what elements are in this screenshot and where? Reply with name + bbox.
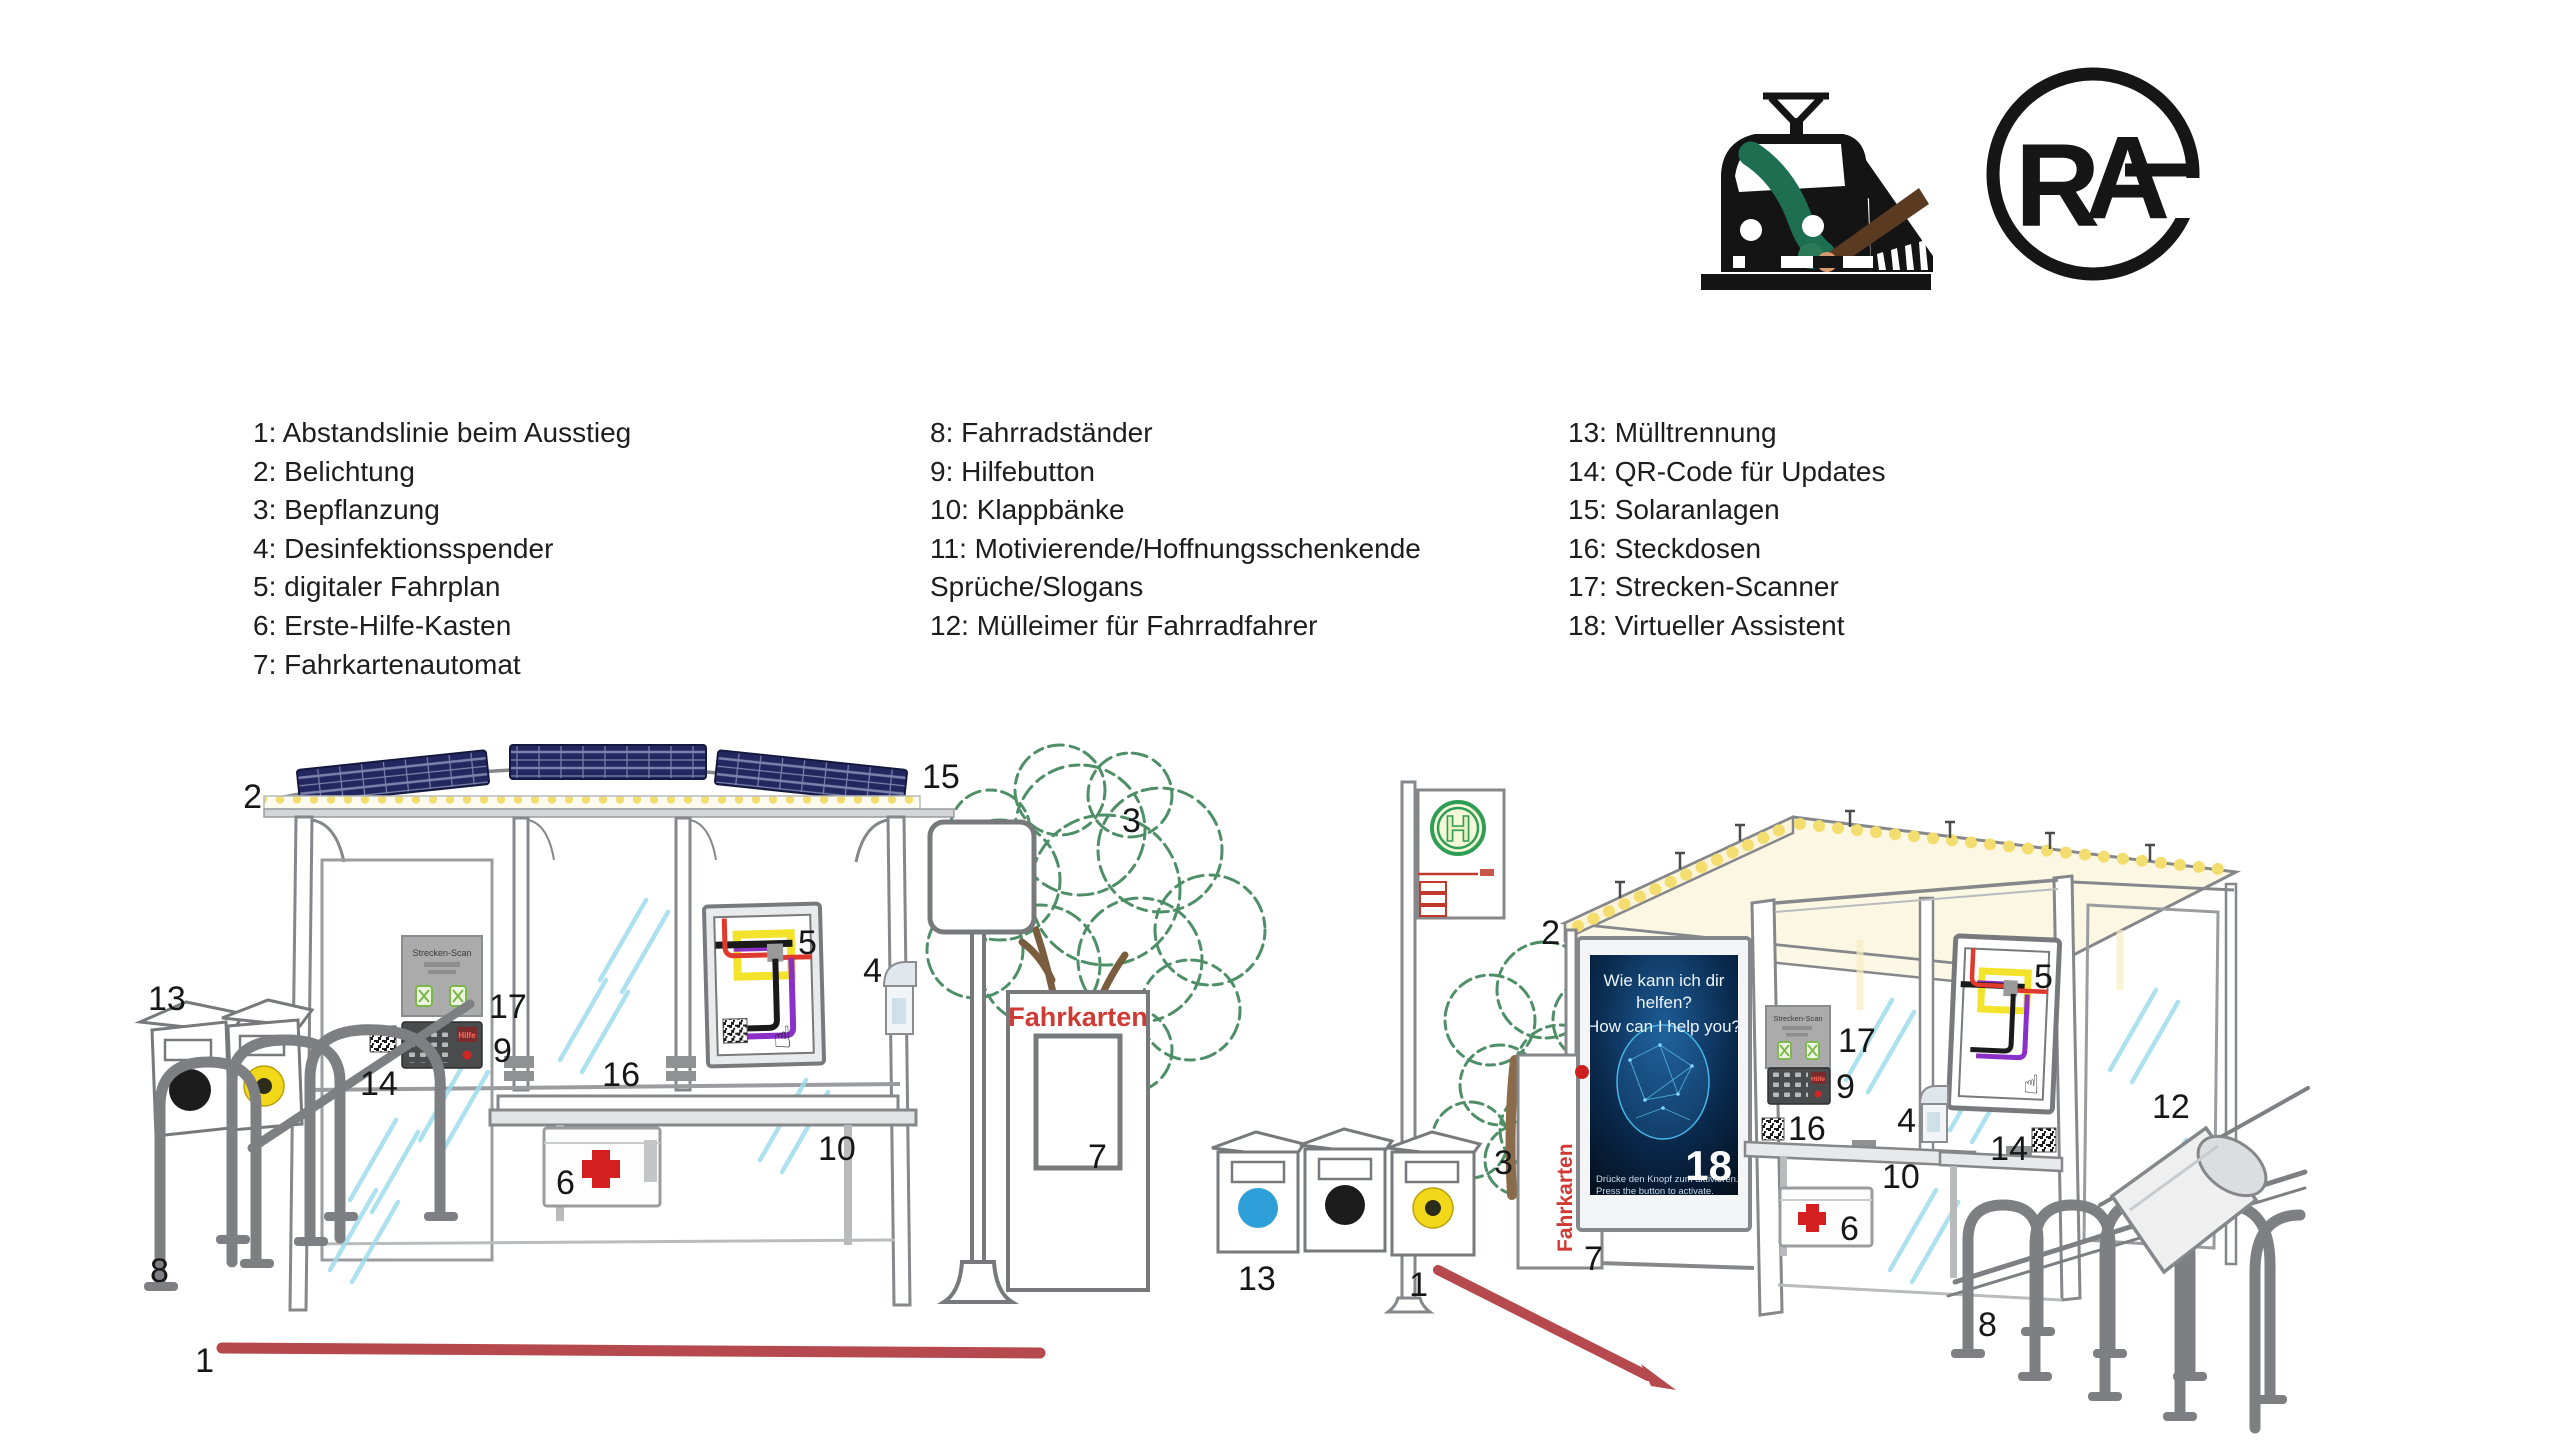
svg-text:13: 13	[148, 980, 186, 1018]
svg-text:14: 14	[1990, 1130, 2028, 1168]
scanner-title: Strecken-Scan	[1773, 1014, 1822, 1023]
qr-code-icon	[723, 1018, 748, 1043]
distance-line	[222, 1348, 1040, 1353]
svg-text:16: 16	[602, 1056, 640, 1094]
bus-stop-illustration: Fahrkarten	[0, 0, 2560, 1440]
svg-text:16: 16	[1788, 1110, 1826, 1148]
qr-code-icon	[1762, 1118, 1784, 1140]
fahrkarten-label: Fahrkarten	[1008, 1002, 1148, 1032]
svg-text:10: 10	[1882, 1158, 1920, 1196]
solar-panel-icon	[510, 745, 706, 779]
svg-text:1: 1	[1409, 1266, 1428, 1304]
svg-text:4: 4	[1897, 1102, 1916, 1140]
waste-bins[interactable]	[1212, 1129, 1480, 1255]
help-label: Hilfe	[458, 1031, 476, 1040]
assistant-line-3: How can I help you?	[1587, 1017, 1741, 1036]
svg-text:6: 6	[556, 1164, 575, 1202]
svg-text:13: 13	[1238, 1260, 1276, 1298]
assistant-number: 18	[1685, 1142, 1732, 1189]
svg-text:8: 8	[150, 1252, 169, 1290]
hand-tap-icon: ☝	[2023, 1070, 2040, 1101]
svg-text:15: 15	[922, 758, 960, 796]
svg-text:8: 8	[1978, 1306, 1997, 1344]
svg-text:17: 17	[1838, 1022, 1876, 1060]
svg-text:14: 14	[360, 1065, 398, 1103]
svg-text:9: 9	[1836, 1068, 1855, 1106]
waste-label-icon	[1325, 1185, 1365, 1225]
svg-text:5: 5	[798, 924, 817, 962]
hand-tap-icon: ☝	[773, 1020, 792, 1055]
right-shelter-scene: H	[1212, 782, 2308, 1428]
svg-text:2: 2	[243, 778, 262, 816]
route-scanner-panel[interactable]: Strecken-Scan	[1766, 1006, 1830, 1068]
assistant-line-1: Wie kann ich dir	[1604, 971, 1725, 990]
svg-text:6: 6	[1840, 1210, 1859, 1248]
help-button-icon[interactable]	[463, 1051, 472, 1060]
help-button-keypad[interactable]: Hilfe	[1768, 1068, 1830, 1104]
help-button-icon[interactable]	[1815, 1091, 1822, 1098]
svg-text:10: 10	[818, 1130, 856, 1168]
page: R A 1: Abstandslinie beim Ausstieg 2: Be…	[0, 0, 2560, 1440]
shelter-roof	[264, 745, 954, 817]
ticket-machine-screen[interactable]	[1036, 1036, 1120, 1168]
distance-line	[1438, 1270, 1676, 1390]
activate-button-icon[interactable]	[1575, 1065, 1589, 1079]
svg-text:7: 7	[1584, 1240, 1603, 1278]
ticket-machine: Fahrkarten	[1008, 992, 1148, 1290]
svg-text:17: 17	[489, 988, 527, 1026]
svg-text:7: 7	[1088, 1138, 1107, 1176]
svg-text:1: 1	[195, 1342, 214, 1380]
svg-text:9: 9	[493, 1032, 512, 1070]
wireframe-head-icon	[1617, 1025, 1709, 1139]
h-sign-letter: H	[1445, 808, 1471, 849]
svg-text:3: 3	[1494, 1144, 1513, 1182]
svg-text:2: 2	[1541, 914, 1560, 952]
sanitizer-dispenser[interactable]	[1920, 1086, 1948, 1142]
scanner-title: Strecken-Scan	[412, 948, 471, 958]
sanitizer-dispenser[interactable]	[884, 962, 916, 1034]
power-sockets[interactable]	[504, 1056, 696, 1081]
left-shelter-scene: Fahrkarten	[140, 745, 1265, 1380]
svg-text:4: 4	[863, 952, 882, 990]
help-label: Hilfe	[1811, 1076, 1825, 1083]
virtual-assistant-display[interactable]: Wie kann ich dir helfen? How can I help …	[1575, 938, 1750, 1230]
assistant-line-2: helfen?	[1636, 993, 1692, 1012]
svg-text:5: 5	[2034, 958, 2053, 996]
fahrkarten-label: Fahrkarten	[1554, 1143, 1577, 1252]
led-strip-icon	[264, 796, 920, 809]
svg-text:12: 12	[2152, 1088, 2190, 1126]
svg-text:3: 3	[1122, 802, 1141, 840]
qr-code-icon	[2032, 1128, 2056, 1152]
waste-label-icon	[1238, 1188, 1278, 1228]
